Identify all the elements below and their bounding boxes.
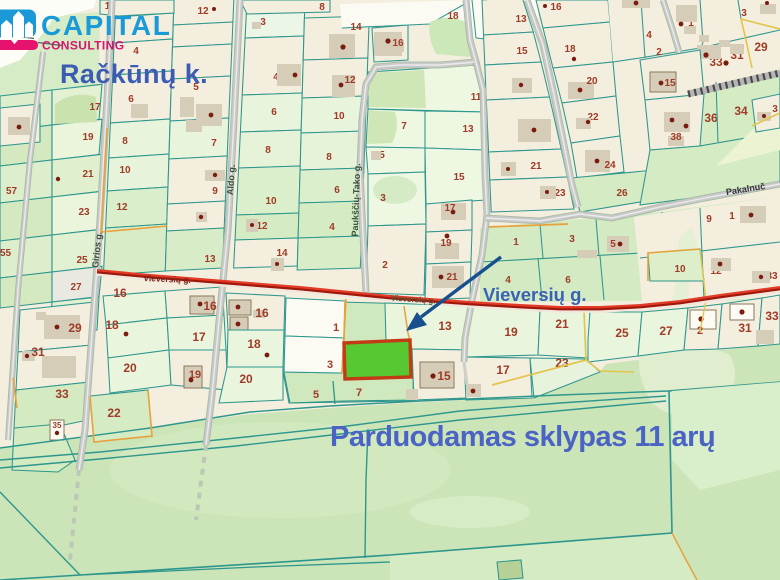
svg-text:33: 33 [55,387,69,401]
svg-text:15: 15 [453,172,465,183]
svg-text:16: 16 [392,38,404,49]
svg-text:20: 20 [123,361,137,375]
svg-text:18: 18 [105,318,119,332]
svg-text:20: 20 [586,76,598,87]
svg-text:8: 8 [122,136,128,147]
svg-text:24: 24 [604,160,616,171]
svg-text:55: 55 [0,248,12,259]
svg-text:1: 1 [333,322,339,334]
svg-text:CAPITAL: CAPITAL [41,10,171,41]
svg-text:12: 12 [344,75,356,86]
svg-text:10: 10 [119,165,131,176]
svg-text:15: 15 [516,46,528,57]
svg-text:17: 17 [192,330,206,344]
svg-text:5: 5 [313,389,319,401]
svg-text:12: 12 [197,6,209,17]
svg-text:5: 5 [610,239,616,250]
svg-text:Vieversių g.: Vieversių g. [143,273,191,285]
svg-text:Vieversių g.: Vieversių g. [483,284,587,305]
svg-text:31: 31 [31,345,45,359]
svg-text:8: 8 [265,145,271,156]
svg-text:4: 4 [646,30,652,41]
svg-text:14: 14 [276,248,288,259]
svg-text:25: 25 [76,255,88,266]
svg-text:21: 21 [446,272,458,283]
svg-text:7: 7 [356,387,362,399]
svg-text:19: 19 [440,238,452,249]
svg-text:12: 12 [116,202,128,213]
svg-text:Parduodamas sklypas 11 arų: Parduodamas sklypas 11 arų [330,421,715,453]
svg-text:22: 22 [107,406,121,420]
svg-text:16: 16 [113,286,127,300]
svg-text:10: 10 [333,111,345,122]
svg-text:29: 29 [68,321,82,335]
svg-text:CONSULTING: CONSULTING [42,39,124,53]
svg-text:36: 36 [704,111,718,125]
svg-text:57: 57 [6,186,18,197]
svg-text:Aldo g.: Aldo g. [225,164,237,195]
svg-text:6: 6 [128,94,134,105]
svg-text:3: 3 [741,8,747,19]
svg-text:29: 29 [754,40,768,54]
svg-text:19: 19 [82,132,94,143]
svg-text:9: 9 [706,214,712,225]
svg-text:21: 21 [530,161,542,172]
svg-text:15: 15 [437,369,451,383]
svg-text:17: 17 [496,363,510,377]
svg-text:3: 3 [380,193,386,204]
svg-text:14: 14 [350,22,362,33]
svg-text:25: 25 [615,326,629,340]
svg-text:19: 19 [504,325,518,339]
svg-text:20: 20 [239,372,253,386]
svg-text:8: 8 [319,2,325,13]
svg-text:15: 15 [664,78,676,89]
svg-text:10: 10 [674,264,686,275]
svg-text:33: 33 [765,309,779,323]
svg-text:34: 34 [734,104,748,118]
svg-text:13: 13 [515,14,527,25]
svg-text:13: 13 [438,319,452,333]
svg-text:3: 3 [569,234,575,245]
svg-text:23: 23 [78,207,90,218]
svg-text:18: 18 [247,337,261,351]
svg-text:19: 19 [189,369,201,381]
svg-text:17: 17 [89,102,101,113]
svg-text:10: 10 [265,196,277,207]
svg-text:18: 18 [447,11,459,22]
svg-text:4: 4 [329,222,335,233]
svg-text:9: 9 [212,186,218,197]
svg-text:6: 6 [334,185,340,196]
svg-text:13: 13 [204,254,216,265]
svg-text:18: 18 [564,44,576,55]
svg-text:27: 27 [70,282,82,293]
svg-text:3: 3 [260,17,266,28]
svg-text:31: 31 [738,321,752,335]
svg-text:3: 3 [772,104,778,115]
svg-text:12: 12 [256,221,268,232]
svg-text:16: 16 [203,299,217,313]
svg-text:38: 38 [670,132,682,143]
svg-text:27: 27 [659,324,673,338]
svg-text:1: 1 [513,237,519,248]
svg-text:16: 16 [550,2,562,13]
svg-text:4: 4 [133,46,139,57]
svg-text:Račkūnų k.: Račkūnų k. [60,59,208,89]
svg-text:13: 13 [462,124,474,135]
svg-text:23: 23 [554,188,566,199]
svg-text:7: 7 [211,138,217,149]
svg-text:2: 2 [382,260,388,271]
svg-text:16: 16 [255,306,269,320]
svg-text:7: 7 [401,121,407,132]
svg-text:6: 6 [271,107,277,118]
svg-text:21: 21 [82,169,94,180]
svg-text:35: 35 [53,421,62,430]
svg-text:17: 17 [444,203,456,214]
svg-text:8: 8 [326,152,332,163]
svg-text:1: 1 [729,211,735,222]
svg-text:3: 3 [327,359,333,371]
svg-text:26: 26 [616,188,628,199]
svg-text:21: 21 [555,317,569,331]
